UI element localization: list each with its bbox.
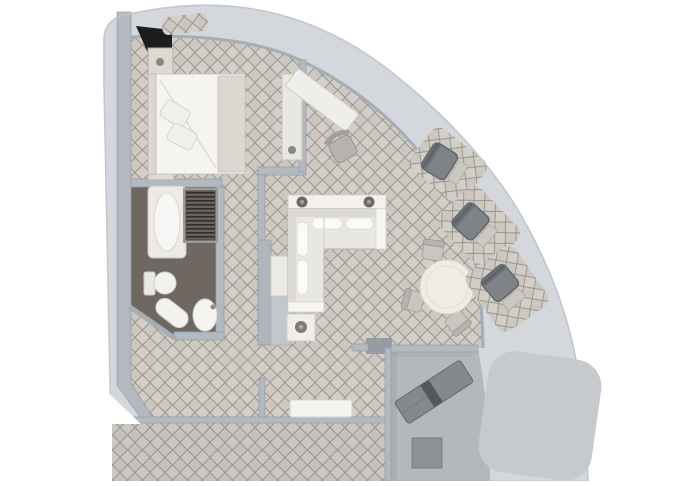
nook-cabinet <box>271 256 289 296</box>
balcony-west-wall <box>385 348 391 481</box>
balcony-table <box>412 438 442 468</box>
balcony-wall-shadow <box>391 352 397 481</box>
side-table-knob-dot <box>299 325 303 329</box>
deck-pad-cutout <box>475 348 605 485</box>
toilet-bowl <box>154 272 176 294</box>
balcony-north-wall <box>391 345 478 352</box>
dresser-knob-bottom <box>288 146 296 154</box>
sofa-cushion-1 <box>312 218 342 229</box>
toilet-tank <box>144 272 155 295</box>
sofa-back-left <box>288 209 296 302</box>
bathtub-basin <box>154 193 180 251</box>
side-table <box>287 314 315 341</box>
floor-plan-canvas <box>0 0 680 486</box>
sink <box>193 299 217 331</box>
round-dining-table <box>420 260 474 314</box>
nook-wall <box>258 240 271 345</box>
dining-chair-top <box>421 239 446 262</box>
sofa-console <box>288 195 386 209</box>
sofa-cushion-2 <box>346 218 373 229</box>
tv-bench <box>290 400 352 417</box>
ship-corridor-floor <box>112 423 388 481</box>
hall-partition-wall <box>259 378 265 417</box>
bed-foot-runner <box>218 76 245 172</box>
page-bottom-strip <box>0 481 680 486</box>
sofa-armrest-bottom <box>288 302 324 312</box>
double-bed <box>148 74 245 174</box>
console-knob-right-dot <box>367 200 371 204</box>
corner-nook <box>258 240 291 345</box>
louvered-closet <box>186 191 215 240</box>
sofa-back-top <box>288 209 376 217</box>
sofa-armrest-right <box>376 209 386 249</box>
bed-headboard <box>148 74 156 174</box>
living-se-wall-stub <box>352 344 368 351</box>
suite-south-wall <box>128 417 391 423</box>
console-knob-left-dot <box>300 200 304 204</box>
floor-plan-page <box>0 0 680 486</box>
balcony-wall-shadow-top <box>391 352 471 357</box>
sink-faucet <box>211 305 216 310</box>
deck-pad <box>475 348 605 485</box>
page-left-strip <box>98 421 112 486</box>
bathroom-south-wall <box>174 332 224 340</box>
sofa-cushion-4 <box>297 260 308 294</box>
sofa-cushion-3 <box>297 222 308 256</box>
nightstand-top-knob <box>156 58 164 66</box>
